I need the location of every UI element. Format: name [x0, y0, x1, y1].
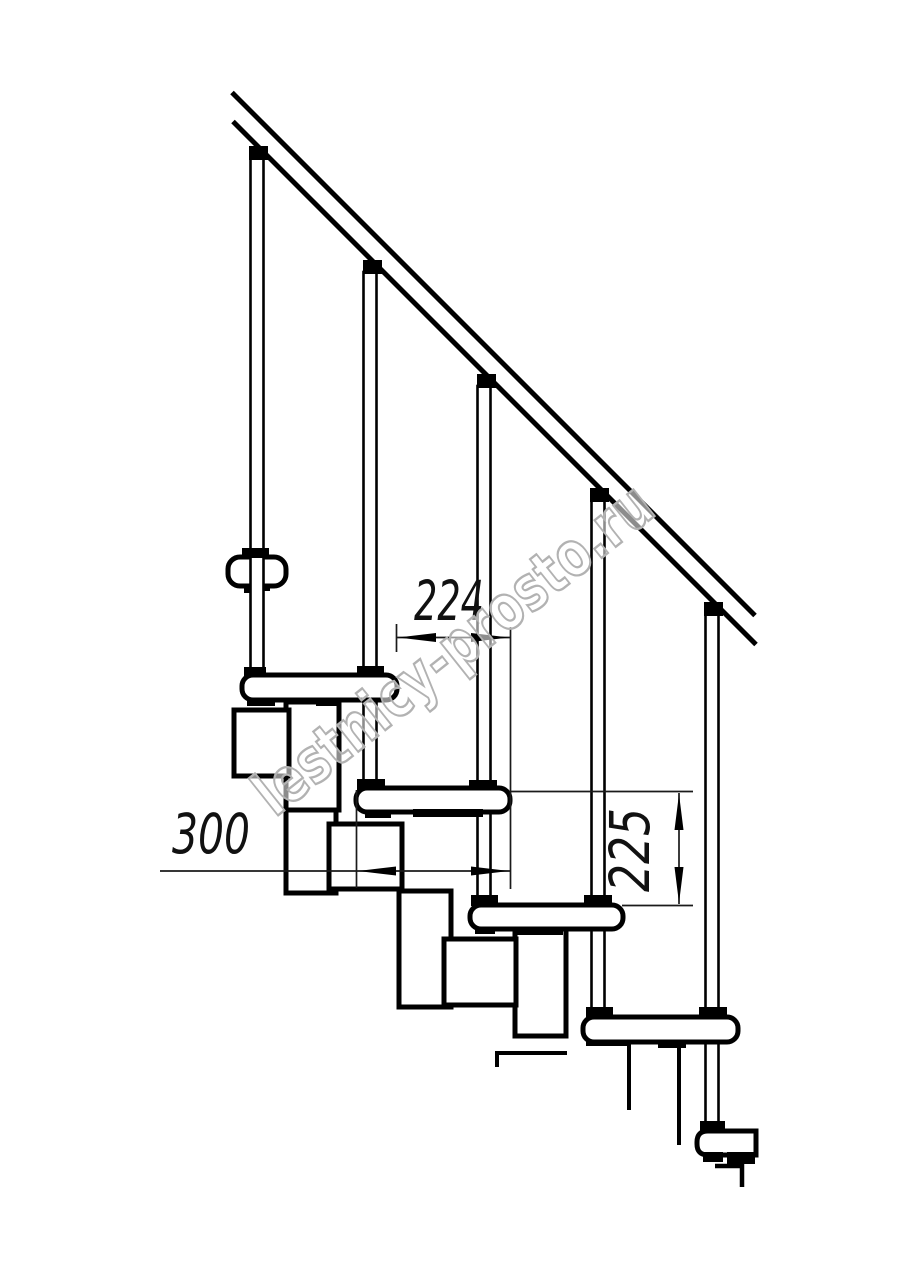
tread [356, 788, 510, 812]
baluster-rod [706, 1042, 719, 1125]
arrowhead-down [675, 867, 684, 903]
tread-partial-bottom [697, 1131, 756, 1155]
module-box [329, 824, 402, 889]
baluster-rod [478, 812, 491, 899]
tread [583, 1017, 738, 1042]
module-box [444, 939, 516, 1005]
dimension-label-rise: 225 [598, 808, 662, 892]
baluster-rod [592, 929, 605, 1011]
module-outline-partial [497, 1053, 567, 1067]
staircase-drawing: 224 300 225 lestnicy-prosto.ru [0, 0, 914, 1280]
module-outline-partial [715, 1166, 742, 1187]
tread [470, 905, 623, 929]
arrowhead-up [675, 794, 684, 830]
drawing-svg: 224 300 225 lestnicy-prosto.ru [0, 0, 914, 1280]
handrail-bottom-line [233, 122, 756, 645]
handrail-top-line [232, 93, 755, 616]
baluster-rod [364, 272, 377, 672]
baluster-rod [706, 614, 719, 1011]
dimension-label-depth: 300 [172, 802, 250, 866]
handrail [232, 93, 756, 645]
module-box [515, 929, 566, 1036]
dimension-225: 225 [511, 792, 693, 906]
baluster-rod [251, 158, 264, 672]
